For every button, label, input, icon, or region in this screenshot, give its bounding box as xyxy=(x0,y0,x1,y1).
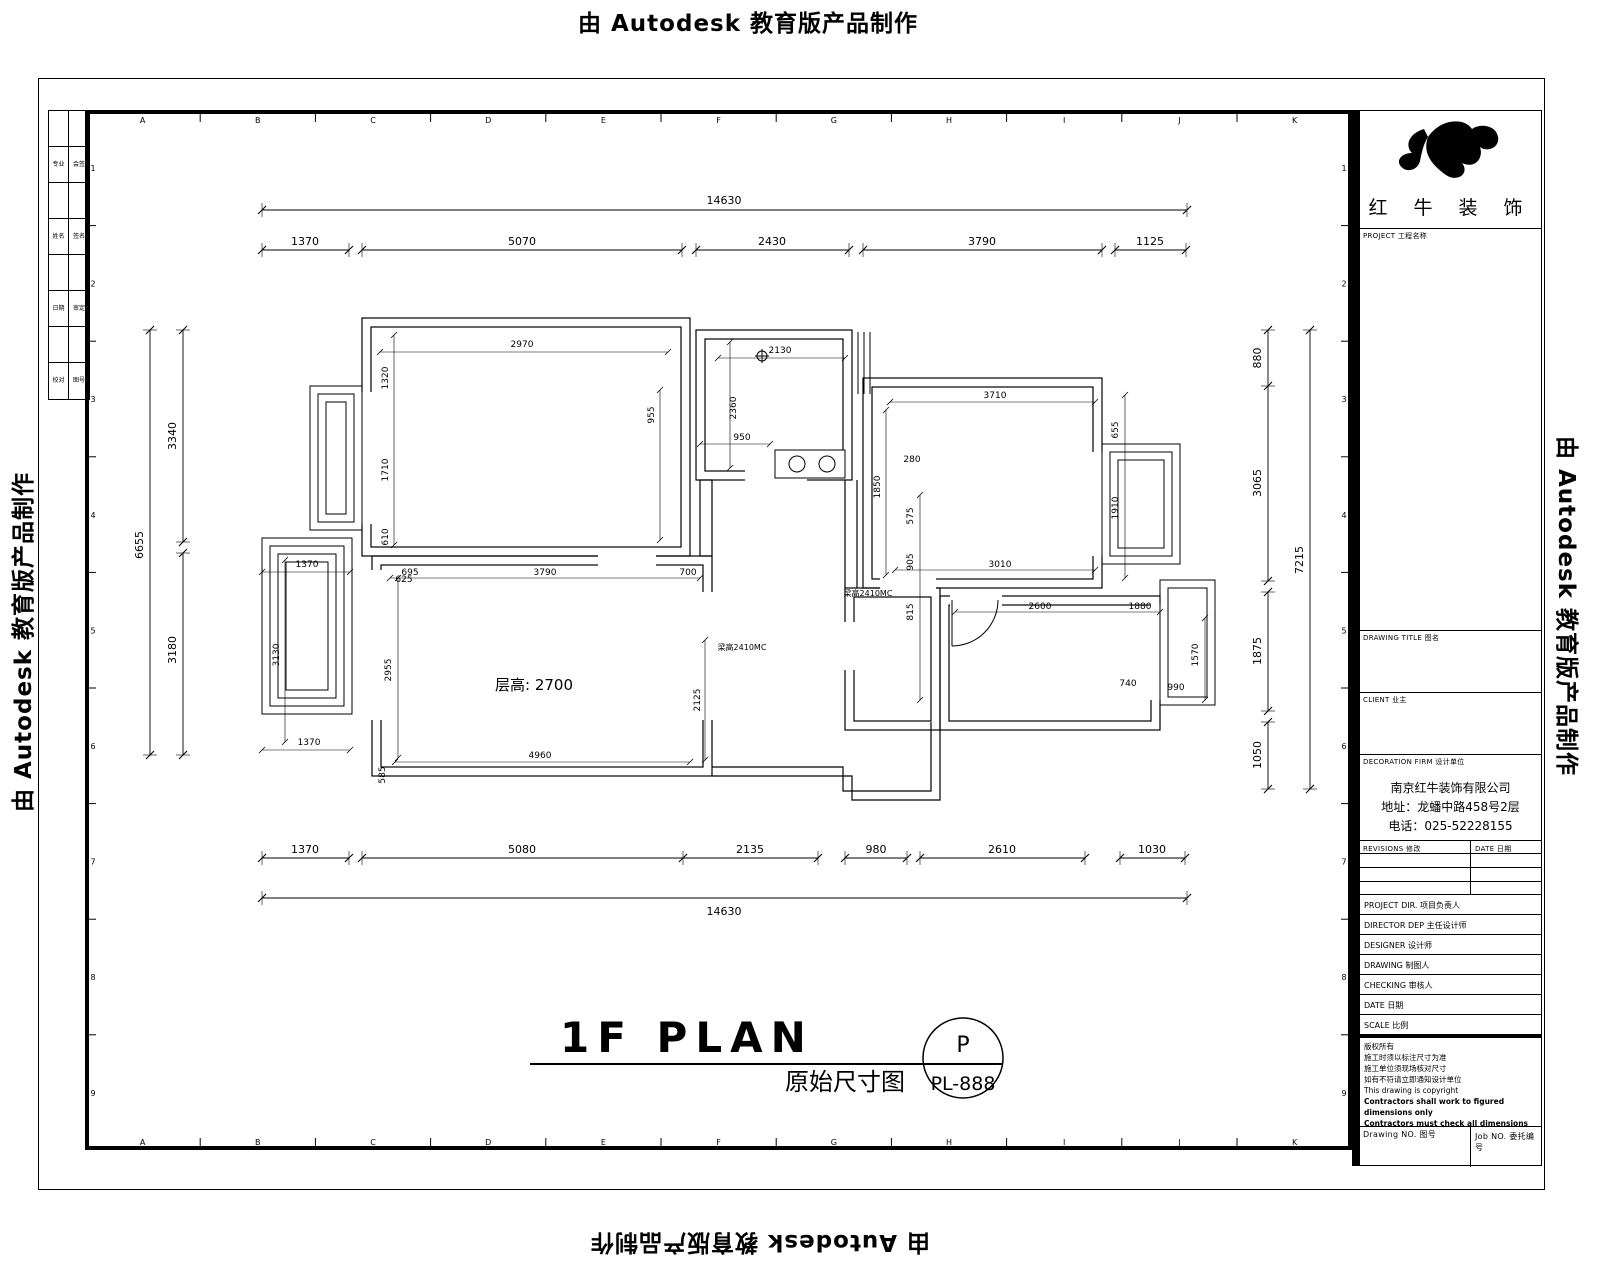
grid-letter: D xyxy=(485,1138,491,1147)
plan-subtitle: 原始尺寸图 xyxy=(785,1068,905,1096)
dim-top-total: 14630 xyxy=(707,194,742,207)
grid-letter: F xyxy=(716,116,721,125)
dimension-label: 1570 xyxy=(1191,643,1201,666)
dim-label: 1050 xyxy=(1251,741,1264,769)
grid-letter: K xyxy=(1292,1138,1298,1147)
dim-label: 2430 xyxy=(758,235,786,248)
door-swing-icon xyxy=(952,600,998,646)
dimension-label: 905 xyxy=(906,553,916,570)
grid-number: 4 xyxy=(1341,511,1346,520)
grid-number: 7 xyxy=(1341,858,1346,867)
grid-letter: G xyxy=(831,116,837,125)
grid-letter: F xyxy=(716,1138,721,1147)
grid-number: 5 xyxy=(1341,626,1346,635)
grid-letter: I xyxy=(1063,1138,1065,1147)
grid-number: 5 xyxy=(90,626,95,635)
grid-number: 3 xyxy=(1341,395,1346,404)
dim-left-total: 6655 xyxy=(133,531,146,559)
grid-letter: A xyxy=(140,116,146,125)
dimension-label: 575 xyxy=(906,507,916,524)
dimension-label: 700 xyxy=(679,568,696,578)
dimension-label: 3710 xyxy=(984,391,1007,401)
dimension-label: 2125 xyxy=(693,689,703,712)
dimension-label: 740 xyxy=(1119,679,1136,689)
dimension-label: 610 xyxy=(381,528,391,545)
floor-plan-canvas: 2970132017106109552130236095037101850280… xyxy=(0,0,1600,1280)
dimension-label: 1370 xyxy=(298,738,321,748)
grid-number: 9 xyxy=(1341,1089,1346,1098)
drawing-sheet: 由 Autodesk 教育版产品制作 由 Autodesk 教育版产品制作 由 … xyxy=(0,0,1600,1280)
dimension-label: 梁高2410MC xyxy=(844,588,893,598)
grid-number: 9 xyxy=(90,1089,95,1098)
grid-letter: C xyxy=(370,1138,376,1147)
dimension-label: 950 xyxy=(733,433,750,443)
dim-label: 1875 xyxy=(1251,637,1264,665)
grid-letter: B xyxy=(255,116,261,125)
dimension-label: 815 xyxy=(906,603,916,620)
dimension-label: 990 xyxy=(1167,683,1184,693)
dim-label: 2610 xyxy=(988,843,1016,856)
dimension-label: 1850 xyxy=(873,475,883,498)
grid-letter: D xyxy=(485,116,491,125)
dimension-label: 1710 xyxy=(381,458,391,481)
dimension-label: 585 xyxy=(378,766,388,783)
plan-title: 1F PLAN xyxy=(560,1013,814,1062)
grid-letter: I xyxy=(1063,116,1065,125)
grid-number: 2 xyxy=(90,280,95,289)
dim-label: 980 xyxy=(866,843,887,856)
dimension-label: 4960 xyxy=(529,751,552,761)
drain-icon xyxy=(755,349,769,363)
dimension-label: 2130 xyxy=(769,346,792,356)
grid-letter: E xyxy=(601,1138,606,1147)
grid-letter: G xyxy=(831,1138,837,1147)
dimension-label: 3790 xyxy=(534,568,557,578)
dim-right-total: 7215 xyxy=(1293,546,1306,574)
dimension-label: 280 xyxy=(903,455,920,465)
dimension-label: 1370 xyxy=(296,560,319,570)
windows xyxy=(262,332,1215,714)
grid-letter: B xyxy=(255,1138,261,1147)
dimension-label: 655 xyxy=(1111,421,1121,438)
sheet-title: 1F PLAN 原始尺寸图 P PL-888 xyxy=(530,1013,1003,1098)
dim-bottom-total: 14630 xyxy=(707,905,742,918)
grid-letter: E xyxy=(601,116,606,125)
dim-label: 880 xyxy=(1251,348,1264,369)
grid-number: 3 xyxy=(90,395,95,404)
dimension-label: 2955 xyxy=(384,659,394,682)
grid-number: 1 xyxy=(1341,164,1346,173)
bubble-letter: P xyxy=(956,1033,969,1058)
grid-letter: A xyxy=(140,1138,146,1147)
dim-label: 3790 xyxy=(968,235,996,248)
dim-label: 3065 xyxy=(1251,469,1264,497)
dimension-label: 梁高2410MC xyxy=(718,642,767,652)
grid-letter: C xyxy=(370,116,376,125)
grid-number: 2 xyxy=(1341,280,1346,289)
dim-label: 2135 xyxy=(736,843,764,856)
dimension-label: 625 xyxy=(395,575,412,585)
dim-label: 1370 xyxy=(291,235,319,248)
grid-number: 7 xyxy=(90,858,95,867)
grid-number: 4 xyxy=(90,511,95,520)
grid-number: 6 xyxy=(90,742,95,751)
dim-label: 1125 xyxy=(1136,235,1164,248)
dimension-label: 2970 xyxy=(511,340,534,350)
dim-label: 5080 xyxy=(508,843,536,856)
walls xyxy=(362,318,1160,800)
dim-label: 5070 xyxy=(508,235,536,248)
dimension-label: 2360 xyxy=(729,396,739,419)
dim-label: 3180 xyxy=(166,636,179,664)
grid-letter: J xyxy=(1177,1138,1180,1147)
dimension-label: 3130 xyxy=(272,643,282,666)
grid-number: 8 xyxy=(1341,973,1346,982)
grid-letter: H xyxy=(946,1138,952,1147)
dim-label: 1370 xyxy=(291,843,319,856)
grid-letter: J xyxy=(1177,116,1180,125)
dimension-label: 2600 xyxy=(1029,602,1052,612)
dimension-label: 1320 xyxy=(381,366,391,389)
dimension-label: 3010 xyxy=(989,560,1012,570)
dim-label: 3340 xyxy=(166,422,179,450)
grid-number: 6 xyxy=(1341,742,1346,751)
floor-height-note: 层高: 2700 xyxy=(495,676,573,694)
dimension-label: 955 xyxy=(647,406,657,423)
grid-number: 1 xyxy=(90,164,95,173)
grid-letter: H xyxy=(946,116,952,125)
dimension-label: 1910 xyxy=(1111,496,1121,519)
grid-letter: K xyxy=(1292,116,1298,125)
dimension-label: 1880 xyxy=(1129,602,1152,612)
dim-label: 1030 xyxy=(1138,843,1166,856)
grid-number: 8 xyxy=(90,973,95,982)
bubble-number: PL-888 xyxy=(931,1073,996,1095)
